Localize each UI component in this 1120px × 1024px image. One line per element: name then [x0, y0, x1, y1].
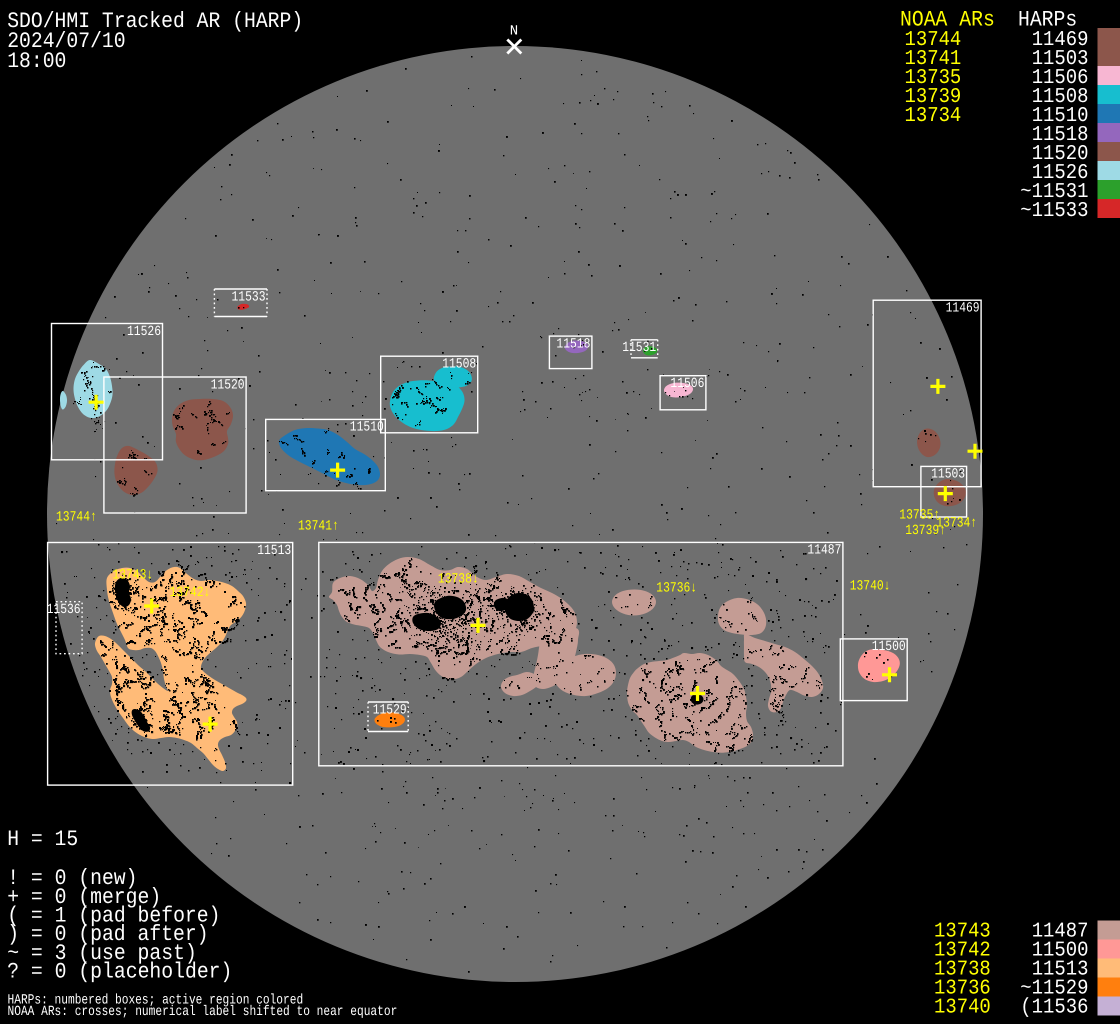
svg-text:13742↓: 13742↓ [170, 585, 211, 601]
svg-text:13734: 13734 [905, 105, 962, 128]
svg-text:11487: 11487 [807, 543, 841, 559]
svg-text:(11536: (11536 [1020, 997, 1088, 1020]
svg-text:N: N [510, 24, 518, 40]
svg-text:11526: 11526 [127, 324, 161, 340]
svg-text:13738↓: 13738↓ [438, 572, 479, 588]
svg-text:11520: 11520 [211, 377, 245, 393]
svg-text:11533: 11533 [232, 289, 266, 305]
svg-text:11503: 11503 [931, 467, 965, 483]
svg-text:11536: 11536 [47, 602, 81, 618]
svg-text:13741↑: 13741↑ [298, 519, 339, 535]
svg-text:18:00: 18:00 [7, 49, 66, 74]
svg-text:13744↑: 13744↑ [56, 510, 97, 526]
svg-text:? = 0 (placeholder): ? = 0 (placeholder) [7, 960, 232, 985]
svg-text:13736↓: 13736↓ [656, 581, 697, 597]
svg-text:13739↑: 13739↑ [905, 523, 946, 539]
svg-text:11531: 11531 [622, 340, 656, 356]
svg-text:11506: 11506 [670, 376, 704, 392]
svg-text:H = 15: H = 15 [7, 827, 78, 852]
svg-text:11469: 11469 [946, 301, 980, 317]
svg-text:13743↓: 13743↓ [112, 567, 153, 583]
svg-text:11500: 11500 [872, 639, 906, 655]
svg-text:13740: 13740 [934, 997, 991, 1020]
svg-text:11513: 11513 [257, 543, 291, 559]
svg-text:11529: 11529 [373, 702, 407, 718]
svg-text:NOAA ARs: crosses; numerical l: NOAA ARs: crosses; numerical label shift… [8, 1004, 398, 1020]
svg-text:13740↓: 13740↓ [850, 579, 891, 595]
svg-text:11510: 11510 [350, 420, 384, 436]
svg-text:~11533: ~11533 [1020, 200, 1088, 223]
svg-text:11508: 11508 [442, 357, 476, 373]
svg-text:11518: 11518 [556, 336, 590, 352]
svg-text:13735↑: 13735↑ [899, 507, 940, 523]
